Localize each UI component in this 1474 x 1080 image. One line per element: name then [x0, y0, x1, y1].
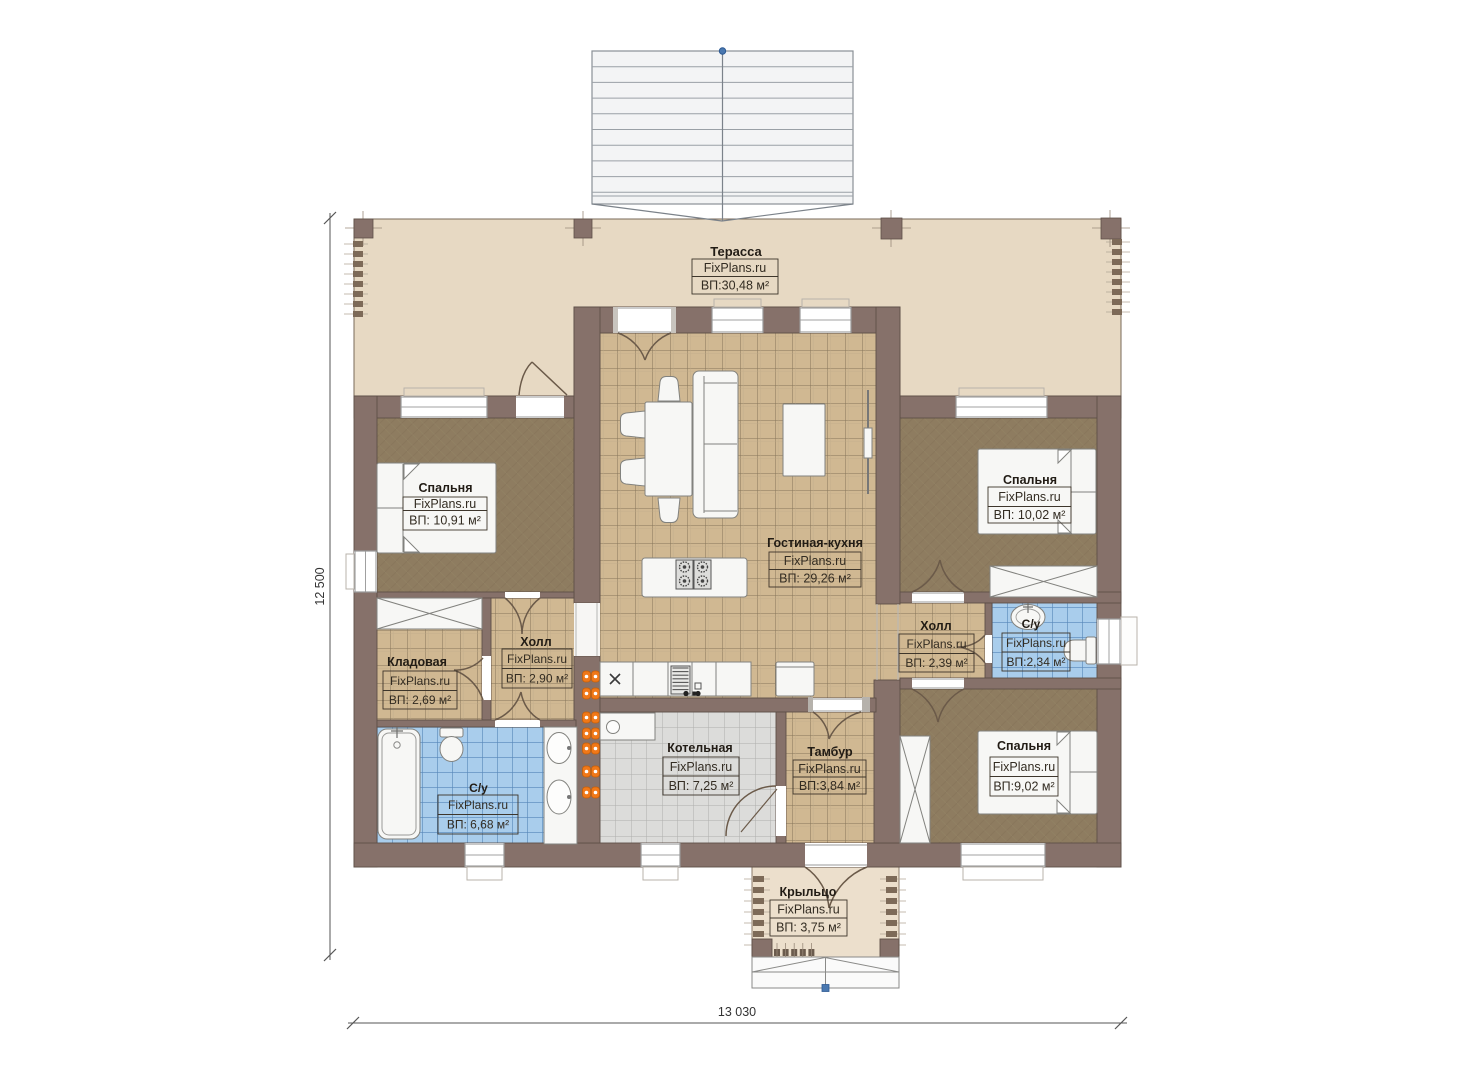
svg-text:FixPlans.ru: FixPlans.ru	[784, 554, 847, 568]
svg-text:ВП:3,84 м²: ВП:3,84 м²	[799, 779, 860, 793]
svg-text:С/у: С/у	[469, 781, 488, 795]
svg-text:Гостиная-кухня: Гостиная-кухня	[767, 536, 863, 550]
svg-text:FixPlans.ru: FixPlans.ru	[798, 762, 861, 776]
svg-text:FixPlans.ru: FixPlans.ru	[448, 798, 508, 812]
svg-text:ВП:2,34 м²: ВП:2,34 м²	[1007, 655, 1066, 669]
svg-text:FixPlans.ru: FixPlans.ru	[906, 637, 966, 651]
svg-text:FixPlans.ru: FixPlans.ru	[998, 490, 1061, 504]
svg-text:FixPlans.ru: FixPlans.ru	[993, 760, 1056, 774]
svg-text:12 500: 12 500	[313, 567, 327, 605]
svg-text:С/у: С/у	[1022, 617, 1041, 631]
svg-text:FixPlans.ru: FixPlans.ru	[704, 261, 767, 275]
svg-text:ВП:30,48 м²: ВП:30,48 м²	[701, 279, 769, 293]
svg-text:13 030: 13 030	[718, 1005, 756, 1019]
svg-text:Кладовая: Кладовая	[387, 655, 447, 669]
svg-text:FixPlans.ru: FixPlans.ru	[507, 652, 567, 666]
svg-text:Холл: Холл	[920, 619, 951, 633]
svg-text:FixPlans.ru: FixPlans.ru	[414, 497, 477, 511]
svg-text:FixPlans.ru: FixPlans.ru	[1006, 636, 1066, 650]
svg-text:Терасса: Терасса	[710, 244, 762, 259]
svg-text:Спальня: Спальня	[997, 739, 1051, 753]
svg-text:Спальня: Спальня	[419, 481, 473, 495]
svg-text:ВП: 2,69 м²: ВП: 2,69 м²	[389, 693, 451, 707]
svg-text:ВП: 3,75 м²: ВП: 3,75 м²	[776, 920, 841, 934]
svg-text:ВП: 2,90 м²: ВП: 2,90 м²	[506, 672, 568, 686]
svg-text:ВП: 2,39 м²: ВП: 2,39 м²	[905, 656, 967, 670]
svg-text:Спальня: Спальня	[1003, 473, 1057, 487]
svg-text:ВП: 10,02 м²: ВП: 10,02 м²	[994, 508, 1066, 522]
svg-text:Тамбур: Тамбур	[807, 745, 853, 759]
svg-text:ВП: 6,68 м²: ВП: 6,68 м²	[447, 818, 509, 832]
svg-text:ВП:9,02 м²: ВП:9,02 м²	[993, 780, 1054, 794]
svg-text:FixPlans.ru: FixPlans.ru	[390, 674, 450, 688]
svg-text:Холл: Холл	[520, 635, 551, 649]
svg-text:ВП: 7,25 м²: ВП: 7,25 м²	[669, 779, 734, 793]
svg-text:FixPlans.ru: FixPlans.ru	[670, 760, 733, 774]
svg-text:FixPlans.ru: FixPlans.ru	[777, 902, 840, 916]
svg-text:Котельная: Котельная	[667, 741, 732, 755]
svg-text:ВП: 10,91 м²: ВП: 10,91 м²	[409, 514, 481, 528]
svg-text:ВП: 29,26 м²: ВП: 29,26 м²	[779, 572, 851, 586]
svg-text:Крыльцо: Крыльцо	[780, 885, 837, 899]
